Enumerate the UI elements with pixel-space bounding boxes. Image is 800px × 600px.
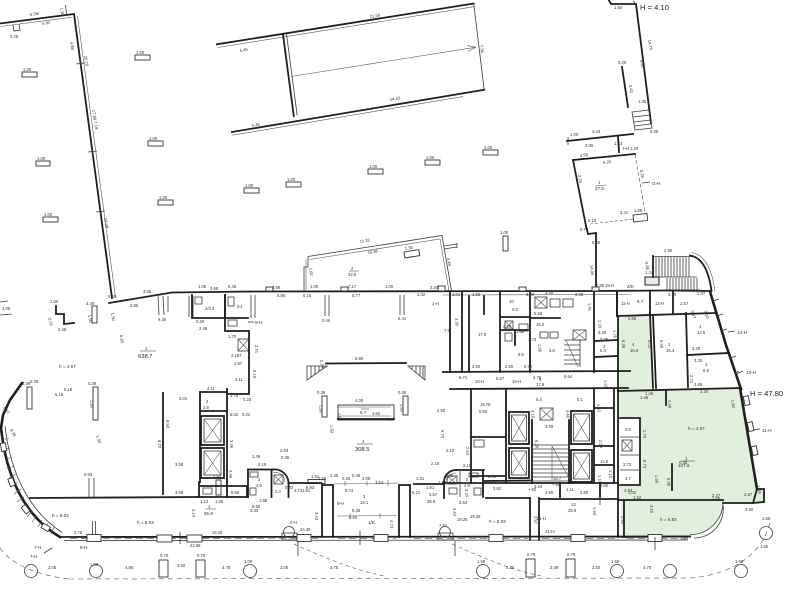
svg-text:4.7: 4.7 (625, 476, 631, 481)
svg-text:1.50: 1.50 (399, 404, 405, 413)
svg-text:3.40: 3.40 (620, 516, 625, 525)
svg-text:3.75: 3.75 (222, 565, 231, 570)
svg-text:5.1: 5.1 (577, 397, 583, 402)
svg-text:0.79: 0.79 (527, 552, 536, 557)
svg-text:4.62: 4.62 (372, 411, 381, 416)
svg-text:1.07: 1.07 (697, 291, 706, 296)
svg-text:0.46: 0.46 (322, 318, 331, 323)
svg-text:1.57: 1.57 (680, 301, 689, 306)
svg-text:1.70: 1.70 (228, 334, 237, 339)
svg-text:0.33: 0.33 (285, 485, 294, 490)
svg-text:1.02: 1.02 (417, 292, 426, 297)
svg-text:1.69: 1.69 (735, 559, 744, 564)
svg-text:1.00: 1.00 (136, 50, 145, 55)
svg-text:1.81: 1.81 (426, 485, 435, 490)
svg-text:1.00: 1.00 (44, 212, 53, 217)
svg-text:4.18: 4.18 (530, 410, 536, 419)
svg-text:3.28: 3.28 (545, 290, 554, 295)
svg-text:13: 13 (571, 502, 576, 507)
svg-text:19.25: 19.25 (470, 514, 481, 519)
svg-text:3.41: 3.41 (620, 210, 629, 215)
svg-text:6.85: 6.85 (277, 293, 286, 298)
svg-text:308.5: 308.5 (355, 447, 370, 453)
svg-text:6.28: 6.28 (534, 440, 540, 449)
svg-text:4.48: 4.48 (565, 410, 571, 419)
svg-text:3.06: 3.06 (585, 143, 594, 148)
svg-text:h = 5.03: h = 5.03 (489, 519, 506, 524)
svg-text:3.05: 3.05 (280, 565, 289, 570)
svg-text:0.16: 0.16 (303, 293, 312, 298)
svg-text:1.69: 1.69 (477, 559, 486, 564)
svg-text:2.41: 2.41 (254, 345, 259, 354)
svg-text:0.29: 0.29 (196, 319, 205, 324)
svg-text:1.00: 1.00 (245, 183, 254, 188)
svg-text:5.54: 5.54 (564, 374, 573, 379)
svg-text:2.50: 2.50 (472, 364, 481, 369)
svg-text:2.10: 2.10 (446, 448, 455, 453)
svg-text:3.14: 3.14 (464, 489, 470, 498)
svg-text:6.71: 6.71 (459, 375, 468, 380)
svg-text:3.01: 3.01 (179, 396, 188, 401)
svg-text:1.88: 1.88 (259, 498, 268, 503)
svg-text:1.00: 1.00 (23, 67, 32, 72)
svg-text:3.47: 3.47 (680, 536, 689, 541)
svg-text:1.00: 1.00 (159, 195, 168, 200)
svg-text:2.3: 2.3 (275, 489, 281, 494)
svg-text:1.60: 1.60 (614, 5, 623, 10)
svg-text:6.21: 6.21 (412, 490, 421, 495)
svg-text:4.11: 4.11 (207, 386, 216, 391)
svg-text:1.00: 1.00 (500, 230, 509, 235)
svg-text:1.10: 1.10 (608, 470, 613, 479)
svg-text:3.65: 3.65 (694, 382, 703, 387)
svg-text:14-H: 14-H (737, 330, 747, 335)
svg-text:8.93: 8.93 (306, 485, 315, 490)
svg-text:h = 4.57: h = 4.57 (688, 426, 705, 431)
svg-text:0.50: 0.50 (108, 294, 117, 299)
svg-text:0.16: 0.16 (588, 218, 597, 223)
svg-text:16-H: 16-H (475, 379, 484, 384)
svg-text:5.7: 5.7 (360, 410, 367, 415)
svg-text:1.58: 1.58 (537, 344, 543, 353)
svg-text:1.13: 1.13 (438, 480, 447, 485)
svg-text:0.70: 0.70 (524, 364, 533, 369)
svg-text:1.30: 1.30 (330, 473, 339, 478)
svg-text:1.50: 1.50 (89, 400, 95, 409)
svg-text:0.70: 0.70 (197, 553, 206, 558)
svg-text:h = 5.83: h = 5.83 (660, 517, 677, 522)
svg-text:8.6: 8.6 (518, 352, 524, 357)
svg-text:h = 4.57: h = 4.57 (59, 364, 76, 369)
svg-text:1.81: 1.81 (337, 413, 343, 422)
svg-text:9-H: 9-H (255, 320, 262, 325)
svg-text:0.39: 0.39 (317, 390, 326, 395)
svg-text:1.97: 1.97 (234, 361, 243, 366)
svg-text:1.97: 1.97 (533, 516, 538, 525)
svg-text:3.44: 3.44 (534, 484, 543, 489)
svg-text:0.48: 0.48 (58, 327, 67, 332)
svg-text:39.9: 39.9 (427, 499, 436, 504)
svg-text:1.68: 1.68 (634, 208, 643, 213)
svg-text:2.73: 2.73 (623, 462, 632, 467)
svg-text:3.40: 3.40 (86, 301, 95, 306)
svg-text:1.41: 1.41 (587, 303, 593, 312)
svg-text:0.26: 0.26 (342, 476, 351, 481)
svg-text:8.19: 8.19 (252, 370, 257, 379)
svg-text:3.46: 3.46 (229, 440, 234, 449)
svg-text:7.17: 7.17 (348, 284, 357, 289)
svg-text:3.9: 3.9 (625, 427, 631, 432)
svg-text:11-H: 11-H (621, 301, 630, 306)
svg-text:9.36: 9.36 (158, 317, 167, 322)
svg-text:4.9: 4.9 (464, 483, 470, 488)
svg-text:2.19: 2.19 (463, 463, 472, 468)
svg-text:2/K: 2/K (627, 284, 635, 289)
svg-text:2.90: 2.90 (664, 248, 673, 253)
svg-text:7.52: 7.52 (439, 523, 448, 528)
svg-text:5.7: 5.7 (637, 299, 644, 304)
svg-text:5.02: 5.02 (230, 412, 239, 417)
svg-text:8.50: 8.50 (165, 420, 170, 429)
svg-text:1.50: 1.50 (329, 425, 335, 434)
svg-text:3.68: 3.68 (210, 286, 219, 291)
svg-text:1.50: 1.50 (654, 475, 659, 484)
svg-text:5.18: 5.18 (55, 392, 64, 397)
svg-text:5.26: 5.26 (603, 159, 612, 165)
svg-text:0.63: 0.63 (84, 472, 93, 477)
svg-text:3.53: 3.53 (459, 500, 468, 505)
svg-text:6.98: 6.98 (355, 356, 364, 361)
svg-text:4.90: 4.90 (42, 20, 51, 26)
svg-text:4.58: 4.58 (580, 152, 589, 158)
svg-text:0.39: 0.39 (398, 390, 407, 395)
svg-text:3.36: 3.36 (454, 318, 460, 327)
svg-text:1.50: 1.50 (760, 544, 769, 549)
svg-text:3.90: 3.90 (745, 507, 754, 512)
svg-text:638.7: 638.7 (138, 354, 153, 360)
svg-text:3.08: 3.08 (362, 476, 371, 481)
svg-text:3.45: 3.45 (649, 505, 654, 514)
svg-text:1.05: 1.05 (445, 473, 454, 478)
svg-text:1.00: 1.00 (426, 155, 435, 160)
svg-text:6.45: 6.45 (228, 284, 237, 289)
svg-text:3.69: 3.69 (545, 424, 554, 429)
svg-text:3.35: 3.35 (575, 292, 584, 297)
svg-text:3.10: 3.10 (668, 292, 677, 297)
svg-text:5.6: 5.6 (512, 307, 518, 312)
svg-text:6.41: 6.41 (398, 316, 407, 321)
svg-text:6.70: 6.70 (440, 430, 445, 439)
svg-text:0.29: 0.29 (618, 60, 627, 65)
svg-text:2.19: 2.19 (431, 461, 440, 466)
svg-text:3.05: 3.05 (2, 306, 11, 311)
svg-text:16.4: 16.4 (666, 348, 675, 353)
svg-text:3.75: 3.75 (330, 565, 339, 570)
svg-text:0.70: 0.70 (160, 553, 169, 558)
svg-text:1.01: 1.01 (452, 292, 461, 297)
svg-text:5.46: 5.46 (352, 508, 361, 513)
svg-text:4.11: 4.11 (235, 377, 244, 382)
svg-text:19.25: 19.25 (212, 530, 223, 535)
svg-text:2.67: 2.67 (744, 492, 753, 497)
svg-text:5.57: 5.57 (496, 376, 505, 381)
svg-text:2.47: 2.47 (712, 493, 721, 498)
svg-text:2.187: 2.187 (231, 353, 242, 358)
svg-text:8.70: 8.70 (157, 440, 162, 449)
svg-text:3.29: 3.29 (526, 292, 535, 297)
svg-text:1.56: 1.56 (762, 516, 771, 521)
svg-text:2.65: 2.65 (628, 316, 637, 321)
svg-text:4.00: 4.00 (355, 398, 364, 403)
svg-text:1.00: 1.00 (369, 164, 378, 169)
svg-text:1.46: 1.46 (645, 391, 654, 396)
svg-text:G-H: G-H (652, 181, 660, 186)
svg-text:1.73: 1.73 (528, 337, 537, 342)
svg-text:16.6: 16.6 (630, 348, 639, 353)
svg-text:2.54: 2.54 (598, 440, 604, 449)
svg-text:1.00: 1.00 (50, 299, 59, 304)
svg-text:3.08: 3.08 (175, 462, 184, 467)
svg-text:0.20: 0.20 (243, 397, 252, 402)
svg-text:8.73: 8.73 (642, 460, 647, 469)
svg-text:1.00: 1.00 (90, 562, 99, 567)
svg-text:3.57: 3.57 (429, 492, 438, 497)
svg-text:1-H: 1-H (432, 301, 439, 306)
svg-text:H = 4.10: H = 4.10 (640, 3, 669, 12)
svg-text:3.85: 3.85 (130, 303, 139, 308)
svg-text:2.50: 2.50 (437, 408, 446, 413)
svg-text:0.39: 0.39 (30, 379, 39, 384)
svg-text:7.5: 7.5 (444, 328, 450, 333)
svg-text:2.98: 2.98 (272, 285, 281, 290)
svg-text:3.30: 3.30 (694, 358, 703, 363)
svg-text:4.50: 4.50 (545, 490, 554, 495)
svg-text:0.36: 0.36 (281, 455, 290, 460)
svg-text:1.11: 1.11 (566, 487, 575, 492)
svg-text:2.34: 2.34 (430, 285, 439, 290)
svg-text:1.49: 1.49 (252, 454, 261, 459)
svg-text:0.63: 0.63 (479, 409, 488, 414)
svg-text:4.43: 4.43 (592, 129, 601, 134)
svg-text:3.14: 3.14 (191, 509, 196, 518)
svg-text:1.05: 1.05 (215, 499, 224, 504)
svg-text:2.49: 2.49 (199, 326, 208, 331)
svg-text:2.08: 2.08 (550, 565, 559, 570)
svg-text:1.00: 1.00 (287, 177, 296, 182)
svg-text:2.20: 2.20 (700, 389, 709, 394)
svg-text:1.55: 1.55 (318, 476, 327, 481)
svg-text:5.77: 5.77 (352, 293, 361, 298)
svg-text:6.36: 6.36 (659, 340, 664, 349)
svg-text:2.84: 2.84 (488, 474, 497, 479)
svg-text:6.03: 6.03 (647, 340, 652, 349)
svg-text:5.80: 5.80 (592, 240, 601, 245)
svg-text:0.39: 0.39 (88, 381, 97, 386)
svg-text:27.5: 27.5 (595, 186, 604, 191)
svg-text:6.36: 6.36 (621, 340, 626, 349)
svg-text:65.9: 65.9 (204, 511, 213, 516)
svg-text:8-H: 8-H (80, 545, 87, 550)
svg-text:5.58: 5.58 (534, 311, 543, 316)
svg-text:3.25: 3.25 (598, 330, 607, 335)
svg-text:6.9: 6.9 (703, 368, 709, 373)
svg-text:1.00: 1.00 (244, 559, 253, 564)
svg-text:17.8: 17.8 (536, 382, 545, 387)
svg-text:1.81: 1.81 (416, 476, 425, 481)
svg-text:3.25: 3.25 (506, 565, 515, 570)
svg-text:5.18: 5.18 (64, 387, 73, 392)
svg-text:5.60: 5.60 (349, 515, 358, 520)
svg-text:1.52: 1.52 (633, 495, 642, 500)
svg-text:2.19: 2.19 (258, 462, 267, 467)
svg-text:19.78: 19.78 (480, 402, 491, 407)
svg-text:1.24: 1.24 (645, 270, 654, 275)
svg-text:3.29: 3.29 (692, 346, 701, 351)
svg-text:3.43: 3.43 (452, 508, 457, 517)
svg-text:H = 47.80: H = 47.80 (750, 389, 783, 398)
svg-text:42.5: 42.5 (348, 272, 357, 277)
svg-text:1/K: 1/K (368, 520, 376, 525)
svg-text:15-H: 15-H (512, 379, 521, 384)
svg-text:I-H: I-H (623, 146, 629, 151)
svg-text:2.63: 2.63 (465, 447, 470, 456)
svg-text:1.08: 1.08 (198, 284, 207, 289)
svg-text:13-H: 13-H (746, 370, 756, 375)
svg-text:3.69: 3.69 (175, 490, 184, 495)
svg-text:1.02: 1.02 (472, 292, 481, 297)
svg-text:7-H: 7-H (34, 545, 41, 550)
svg-text:4.0: 4.0 (256, 483, 262, 488)
svg-text:4.73: 4.73 (389, 520, 394, 529)
svg-text:25.8: 25.8 (568, 508, 577, 513)
svg-text:5.4: 5.4 (536, 397, 542, 402)
svg-text:0.28: 0.28 (10, 34, 19, 39)
svg-text:h = 5.03: h = 5.03 (137, 520, 154, 525)
svg-text:0.79: 0.79 (567, 552, 576, 557)
svg-text:1.50: 1.50 (667, 400, 672, 409)
svg-text:9-H: 9-H (337, 501, 344, 506)
svg-text:2.60: 2.60 (580, 490, 589, 495)
svg-text:3.33: 3.33 (250, 508, 259, 513)
svg-text:1.76: 1.76 (642, 430, 647, 439)
svg-text:3.1: 3.1 (237, 304, 243, 309)
svg-text:1.82: 1.82 (516, 329, 525, 334)
svg-text:14.8: 14.8 (600, 459, 609, 464)
svg-text:3.35: 3.35 (600, 337, 609, 342)
svg-text:0.22: 0.22 (242, 412, 251, 417)
svg-text:11-H: 11-H (545, 529, 555, 534)
svg-text:6.20: 6.20 (119, 335, 125, 344)
svg-text:4.85: 4.85 (125, 565, 134, 570)
svg-text:+.50: +.50 (552, 482, 561, 487)
svg-text:4.70: 4.70 (643, 565, 652, 570)
svg-text:2.60: 2.60 (600, 483, 609, 488)
svg-text:5.56: 5.56 (231, 490, 240, 495)
svg-text:1.00: 1.00 (37, 156, 46, 161)
svg-text:5.74: 5.74 (345, 488, 354, 493)
svg-text:1.00: 1.00 (385, 284, 394, 289)
svg-text:2.50: 2.50 (505, 364, 514, 369)
svg-text:2.8: 2.8 (203, 405, 209, 410)
svg-text:0.35: 0.35 (650, 129, 659, 134)
svg-text:10: 10 (509, 299, 514, 304)
svg-text:1.00: 1.00 (570, 132, 579, 137)
svg-text:15.2: 15.2 (536, 322, 545, 327)
svg-text:1.00: 1.00 (149, 136, 158, 141)
svg-text:3.65: 3.65 (143, 289, 152, 294)
svg-text:15.7: 15.7 (553, 476, 562, 481)
svg-text:2.46: 2.46 (228, 470, 233, 479)
svg-text:7-H: 7-H (30, 554, 37, 559)
svg-text:3.43: 3.43 (314, 512, 319, 521)
svg-text:1.76: 1.76 (230, 393, 239, 398)
svg-text:15-H: 15-H (605, 283, 614, 288)
svg-text:2.63: 2.63 (280, 448, 289, 453)
svg-text:15.1: 15.1 (360, 500, 369, 505)
svg-text:19.25: 19.25 (457, 517, 468, 522)
svg-text:3.50: 3.50 (592, 565, 601, 570)
svg-text:h = 5.03: h = 5.03 (52, 513, 69, 518)
svg-text:12-H: 12-H (655, 301, 664, 306)
svg-text:1.00: 1.00 (310, 284, 319, 289)
svg-text:5.8: 5.8 (549, 348, 555, 353)
svg-text:1.43: 1.43 (614, 141, 623, 146)
svg-text:2.18: 2.18 (597, 320, 603, 329)
svg-text:1.00: 1.00 (484, 145, 493, 150)
svg-text:24.45: 24.45 (300, 527, 311, 532)
svg-text:1.76: 1.76 (612, 330, 618, 339)
svg-text:6.30: 6.30 (666, 478, 671, 487)
svg-text:1.20: 1.20 (630, 146, 639, 151)
svg-text:1.50: 1.50 (318, 405, 324, 414)
svg-text:1.69: 1.69 (611, 559, 620, 564)
svg-text:22.96: 22.96 (190, 543, 201, 548)
svg-text:3.62: 3.62 (493, 486, 502, 491)
svg-text:1.63: 1.63 (592, 507, 597, 516)
svg-text:3.05: 3.05 (48, 565, 57, 570)
svg-text:0.38: 0.38 (679, 460, 688, 465)
svg-text:11-H: 11-H (762, 428, 772, 433)
svg-text:2.84: 2.84 (624, 488, 633, 493)
svg-text:17.9: 17.9 (478, 332, 487, 337)
svg-text:1.35: 1.35 (638, 99, 647, 104)
svg-text:0.48: 0.48 (352, 473, 361, 478)
svg-text:2.78: 2.78 (74, 530, 83, 535)
svg-text:0-H: 0-H (290, 520, 297, 525)
svg-text:2.29: 2.29 (503, 324, 512, 329)
svg-text:0.85: 0.85 (596, 283, 605, 288)
svg-text:14.6: 14.6 (697, 330, 706, 335)
svg-text:2.50: 2.50 (177, 563, 186, 568)
svg-text:3.54: 3.54 (375, 480, 384, 485)
svg-text:2/4.4: 2/4.4 (205, 306, 215, 311)
